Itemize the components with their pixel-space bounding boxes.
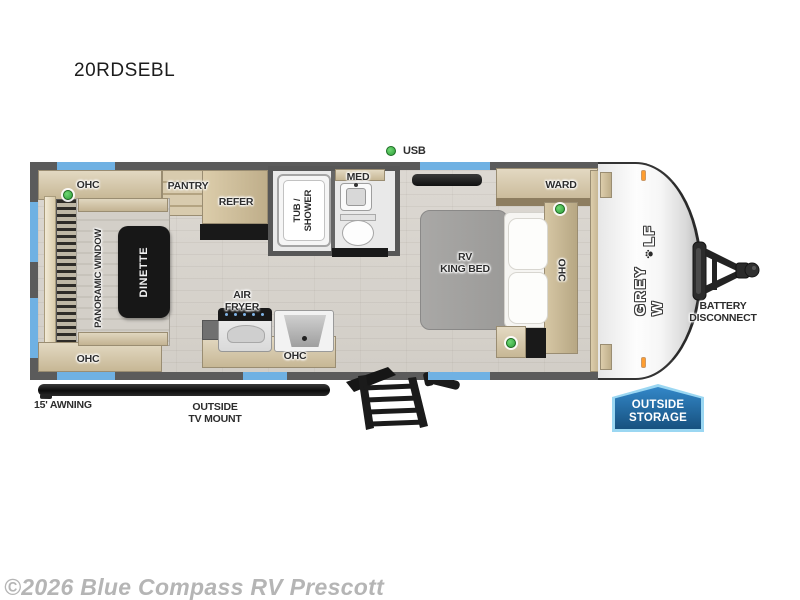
awning-bar	[38, 384, 330, 396]
marker-light-icon	[641, 357, 646, 368]
green-indicator-dot	[555, 204, 565, 214]
label-air: AIR	[233, 289, 250, 301]
marker-light-icon	[641, 170, 646, 181]
usb-indicator-dot	[386, 146, 396, 156]
kitchen-sink	[274, 310, 334, 352]
label-disconnect: DISCONNECT	[689, 312, 756, 324]
panoramic-window-frame	[44, 196, 56, 358]
entry-steps-icon	[344, 366, 436, 434]
badge-line2: STORAGE	[629, 412, 687, 425]
label-tv-mount-1: OUTSIDE	[192, 401, 237, 413]
refrigerator-base	[200, 224, 268, 240]
label-med: MED	[347, 171, 370, 183]
label-tv-mount-2: TV MOUNT	[188, 413, 241, 425]
range-front	[227, 325, 265, 343]
window-top-rear	[57, 162, 115, 170]
kitchen-faucet-icon	[302, 336, 307, 341]
floorplan-page: 20RDSEBL OHC PANTRY PANORAMIC WINDOW DIN…	[0, 0, 800, 600]
faucet-icon	[354, 183, 358, 187]
window-bottom-kitchen	[243, 372, 287, 380]
window-bottom-rear	[57, 372, 115, 380]
window-rear-left-bottom	[30, 298, 38, 358]
label-ohc-kitchen: OHC	[284, 350, 307, 362]
label-ohc-rear-top: OHC	[77, 179, 100, 191]
range-stove	[218, 308, 272, 352]
label-ohc-rear-bottom: OHC	[77, 353, 100, 365]
label-battery: BATTERY	[699, 300, 746, 312]
outside-storage-badge: OUTSIDE STORAGE	[612, 384, 704, 432]
label-ward: WARD	[545, 179, 576, 191]
grey-wolf-logo: GREY W LF	[630, 192, 668, 347]
label-dinette: DINETTE	[118, 226, 170, 318]
label-king-bed: KING BED	[440, 263, 490, 275]
label-usb: USB	[403, 145, 426, 157]
logo-text-prefix: GREY W	[632, 262, 666, 316]
kitchen-sink-basin	[281, 315, 329, 347]
window-rear-left-top	[30, 202, 38, 262]
cap-corner-top	[600, 172, 612, 198]
toilet	[342, 220, 374, 246]
hitch-tongue-icon	[692, 240, 762, 304]
green-indicator-dot	[63, 190, 73, 200]
pillow	[508, 218, 548, 270]
label-panoramic-window: PANORAMIC WINDOW	[86, 198, 112, 358]
bathroom-sink-basin	[346, 188, 366, 206]
page-title: 20RDSEBL	[74, 60, 175, 82]
label-tub-shower: TUB / SHOWER	[277, 174, 331, 247]
label-ohc-bedroom: OHC	[548, 240, 574, 300]
label-fryer: FRYER	[225, 301, 259, 313]
cap-corner-bottom	[600, 344, 612, 370]
green-indicator-dot	[506, 338, 516, 348]
paw-print-icon	[643, 249, 656, 259]
window-top-bedroom	[420, 162, 490, 170]
pillow	[508, 272, 548, 324]
label-refer: REFER	[219, 196, 254, 208]
label-pantry: PANTRY	[168, 180, 209, 192]
bedroom-storage-gap	[526, 328, 546, 358]
logo-text-suffix: LF	[641, 224, 658, 246]
badge-line1: OUTSIDE	[632, 399, 685, 412]
label-rv: RV	[458, 251, 472, 263]
bathroom-divider-wall	[331, 171, 335, 251]
bedroom-tv	[412, 174, 482, 186]
bathroom-door-header	[332, 248, 388, 257]
overhead-cabinet-rear-top	[38, 170, 162, 200]
window-bottom-bedroom	[428, 372, 490, 380]
label-awning: 15' AWNING	[34, 399, 92, 411]
watermark: ©2026 Blue Compass RV Prescott	[4, 574, 384, 600]
